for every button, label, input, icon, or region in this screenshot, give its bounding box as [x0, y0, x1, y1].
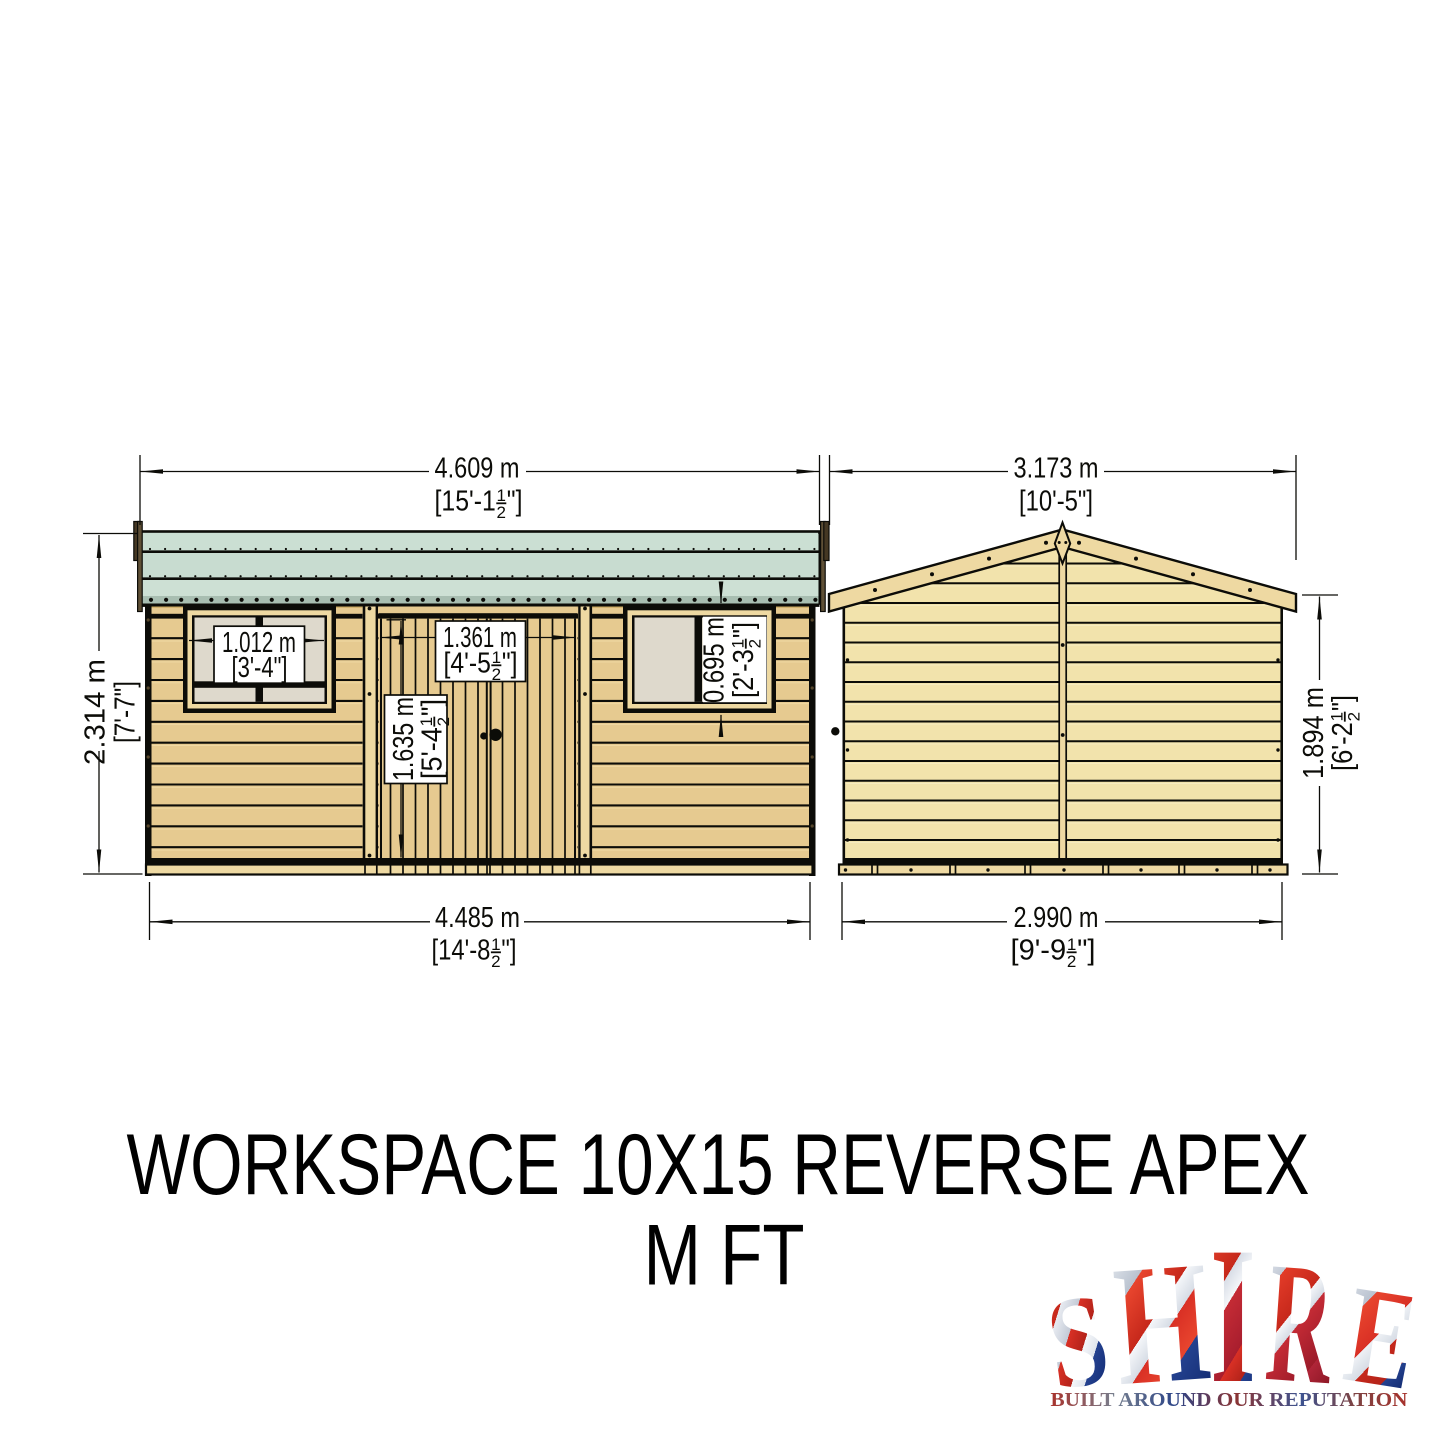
svg-text:BUILT AROUND OUR REPUTATION: BUILT AROUND OUR REPUTATION — [1051, 1389, 1408, 1411]
svg-text:[14'-8: [14'-8 — [432, 935, 491, 967]
svg-text:[15'-1: [15'-1 — [435, 486, 496, 518]
svg-text:[3'-4"]: [3'-4"] — [232, 652, 288, 684]
svg-text:2: 2 — [497, 503, 506, 522]
svg-text:M FT: M FT — [644, 1208, 805, 1304]
svg-text:"]: "] — [1077, 935, 1095, 967]
svg-text:WORKSPACE 10X15 REVERSE APEX: WORKSPACE 10X15 REVERSE APEX — [127, 1117, 1310, 1213]
svg-text:2: 2 — [492, 665, 501, 684]
svg-text:"]: "] — [502, 648, 518, 680]
svg-text:2: 2 — [746, 639, 765, 648]
svg-text:[7'-7"]: [7'-7"] — [110, 681, 142, 743]
svg-text:2: 2 — [1067, 952, 1076, 971]
svg-text:"]: "] — [728, 622, 760, 638]
svg-text:[4'-5: [4'-5 — [444, 648, 491, 680]
svg-text:0.695 m: 0.695 m — [699, 617, 731, 703]
svg-text:"]: "] — [507, 486, 523, 518]
svg-text:[9'-9: [9'-9 — [1011, 935, 1067, 967]
svg-text:[10'-5"]: [10'-5"] — [1019, 486, 1093, 518]
svg-text:[2'-3: [2'-3 — [728, 649, 760, 698]
svg-text:2.990 m: 2.990 m — [1014, 902, 1099, 934]
svg-text:1.894 m: 1.894 m — [1298, 687, 1330, 779]
svg-text:4.485 m: 4.485 m — [435, 902, 520, 934]
svg-text:2.314 m: 2.314 m — [80, 659, 112, 765]
svg-text:"]: "] — [417, 699, 449, 716]
svg-text:"]: "] — [1327, 695, 1359, 711]
svg-text:[5'-4: [5'-4 — [417, 727, 449, 779]
svg-text:2: 2 — [1345, 712, 1364, 721]
svg-text:3.173 m: 3.173 m — [1014, 453, 1099, 485]
svg-text:1.635 m: 1.635 m — [388, 697, 420, 781]
svg-text:[6'-2: [6'-2 — [1327, 722, 1359, 771]
svg-text:2: 2 — [491, 952, 500, 971]
svg-text:"]: "] — [501, 935, 516, 967]
svg-text:2: 2 — [434, 717, 453, 726]
svg-text:4.609 m: 4.609 m — [435, 453, 520, 485]
